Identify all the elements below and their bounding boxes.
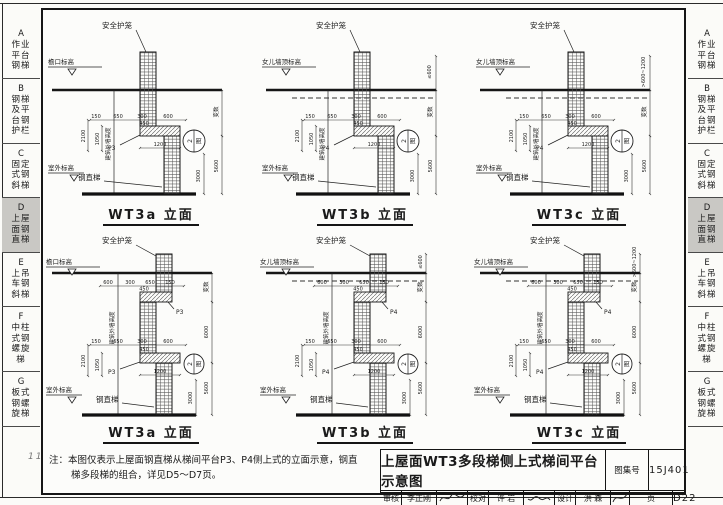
dim-label: 450 <box>353 287 363 293</box>
dim-label: 6000 <box>632 326 638 339</box>
dim-label: 450 <box>567 347 577 353</box>
sidebar-item[interactable]: F 中柱式钢螺旋梯 <box>2 307 40 372</box>
drawing-frame: 2 图 安全护笼 檐口标高 150 650 300 600 450 2100 1… <box>41 8 686 495</box>
sidebar-item-letter: E <box>688 258 723 269</box>
dim-label: 5600 <box>632 382 638 395</box>
dim-label: 1200 <box>368 369 381 375</box>
diagram-lines <box>262 30 436 194</box>
wall-height-label: 建筑外墙高度 <box>108 311 116 345</box>
dim-label: 300 <box>125 280 135 286</box>
roof-level-label: 檐口标高 <box>46 257 73 266</box>
level-marker <box>284 175 292 181</box>
roof-level-label: 女儿墙顶标高 <box>474 257 514 266</box>
review-label: 审核 <box>381 491 402 505</box>
safety-cage-label: 安全护笼 <box>530 20 560 30</box>
elevation-drawing: 2 图 安全护笼 女儿墙顶标高 >600~1200 600 300 650 15… <box>472 232 686 424</box>
dim-label: 150 <box>305 339 315 345</box>
level-marker <box>70 175 78 181</box>
dim-label: 5600 <box>204 382 210 395</box>
dim-label: 300 <box>351 114 361 120</box>
note: 注：本图仅表示上屋面钢直梯从梯间平台P3、P4侧上式的立面示意，钢直 梯多段梯的… <box>49 453 379 483</box>
sidebar-item-letter: C <box>2 149 40 160</box>
balloon-number: 2 <box>401 362 408 366</box>
safety-cage-label: 安全护笼 <box>530 235 560 245</box>
sidebar-item-letter: D <box>688 203 723 214</box>
ladder-lower-segment <box>592 136 608 194</box>
dim-label: 600 <box>377 114 387 120</box>
level-marker <box>498 175 506 181</box>
sidebar-item[interactable]: G 板式钢螺旋梯 <box>2 372 40 427</box>
dim-label: 2100 <box>295 130 301 143</box>
sidebar-item-letter: F <box>2 312 40 323</box>
rest-platform <box>568 126 608 136</box>
sidebar-item-label: 上屋面钢直梯 <box>11 214 31 246</box>
sidebar-left: A 作业平台钢梯 B 钢梯及平台钢护栏 C 固定式钢斜梯 D 上屋面钢直梯 E … <box>2 24 40 427</box>
review-name: 李正刚 <box>402 491 437 505</box>
atlas-page: { "page": { "corner_mark": "111" }, "sid… <box>0 0 723 502</box>
dim-label: 300 <box>339 280 349 286</box>
outdoor-level-label: 室外标高 <box>48 163 75 172</box>
sidebar-item[interactable]: F 中柱式钢螺旋梯 <box>688 307 723 372</box>
elevation-diagram: 2 图 安全护笼 女儿墙顶标高 >600~1200 600 300 650 15… <box>472 232 686 444</box>
dim-label: 450 <box>139 121 149 127</box>
sidebar-item[interactable]: E 上吊车钢斜梯 <box>2 253 40 308</box>
sidebar-item-label: 上屋面钢直梯 <box>697 214 717 246</box>
signature-stroke <box>612 491 628 505</box>
balloon-number: 2 <box>187 362 194 366</box>
balloon-page: 图 <box>624 138 631 144</box>
rest-platform <box>354 126 394 136</box>
dim-label: 150 <box>379 280 389 286</box>
sidebar-item[interactable]: E 上吊车钢斜梯 <box>688 253 723 308</box>
cell-wt3a-bottom: 2 图 安全护笼 檐口标高 600 300 650 150 450 P3 150… <box>44 232 258 450</box>
design-name: 洪 森 <box>576 491 611 505</box>
sidebar-item[interactable]: A 作业平台钢梯 <box>2 24 40 79</box>
sidebar-item-label: 板式钢螺旋梯 <box>11 388 31 420</box>
dim-label: 变数 <box>416 281 424 293</box>
ladder-lower-segment <box>164 136 180 194</box>
signature-stroke <box>526 491 552 505</box>
dim-label: 150 <box>91 339 101 345</box>
elevation-diagram: 2 图 安全护笼 女儿墙顶标高 ≤600 150 650 300 600 450… <box>258 14 472 226</box>
dim-label: 2100 <box>509 355 515 368</box>
steel-ladder-label: 钢直梯 <box>78 172 101 182</box>
elevation-diagram: 2 图 安全护笼 檐口标高 600 300 650 150 450 P3 150… <box>44 232 258 444</box>
sidebar-item-label: 上吊车钢斜梯 <box>11 269 31 301</box>
sidebar-item-letter: F <box>688 312 723 323</box>
dim-label: 600 <box>317 280 327 286</box>
dim-label: 150 <box>165 280 175 286</box>
dim-label: 600 <box>103 280 113 286</box>
dim-label: 1200 <box>582 142 595 148</box>
dim-label: 3000 <box>624 170 630 183</box>
dim-label: 600 <box>531 280 541 286</box>
outdoor-level-label: 室外标高 <box>46 385 73 394</box>
sidebar-item-letter: B <box>688 84 723 95</box>
diagram-title: WT3c 立面 <box>532 204 627 226</box>
sidebar-item-letter: C <box>688 149 723 160</box>
wall-height-label: 建筑外墙高度 <box>532 127 540 161</box>
elevation-diagram: 2 图 安全护笼 檐口标高 150 650 300 600 450 2100 1… <box>44 14 258 226</box>
dim-label: 150 <box>519 339 529 345</box>
sheet-title: 上屋面WT3多段梯侧上式梯间平台示意图 <box>381 450 606 490</box>
balloon-number: 2 <box>187 139 194 143</box>
balloon-page: 图 <box>410 138 417 144</box>
dim-label: 450 <box>139 347 149 353</box>
check-label: 校对 <box>468 491 489 505</box>
dim-label: 600 <box>591 114 601 120</box>
dim-label: 600 <box>377 339 387 345</box>
dim-label: 2100 <box>81 355 87 368</box>
balloon-page: 图 <box>196 361 203 367</box>
check-name: 许 岩 <box>489 491 524 505</box>
sidebar-item[interactable]: A 作业平台钢梯 <box>688 24 723 79</box>
dim-label: 650 <box>327 114 337 120</box>
sidebar-item[interactable]: B 钢梯及平台钢护栏 <box>688 79 723 144</box>
dim-label: 650 <box>573 280 583 286</box>
lower-platform <box>354 353 394 363</box>
dim-label: 5600 <box>428 160 434 173</box>
dim-label: 变数 <box>640 106 648 118</box>
elevation-drawing: 2 图 安全护笼 女儿墙顶标高 ≤600 600 300 650 150 450… <box>258 232 472 424</box>
dim-label: 1200 <box>154 369 167 375</box>
platform-label: P4 <box>604 309 612 316</box>
dim-label: 450 <box>567 121 577 127</box>
dim-label: 1050 <box>523 133 529 146</box>
dim-label: 5600 <box>642 160 648 173</box>
roof-level-label: 檐口标高 <box>48 57 75 66</box>
note-line1: 注：本图仅表示上屋面钢直梯从梯间平台P3、P4侧上式的立面示意，钢直 <box>49 453 379 468</box>
page-top-rule <box>0 3 723 4</box>
wall-height-label: 建筑外墙高度 <box>322 311 330 345</box>
sidebar-item[interactable]: C 固定式钢斜梯 <box>688 144 723 199</box>
diagram-title: WT3b 立面 <box>317 422 413 444</box>
dim-label: 5600 <box>418 382 424 395</box>
dim-label: 变数 <box>212 106 220 118</box>
diagram-title: WT3a 立面 <box>103 422 199 444</box>
steel-ladder-label: 钢直梯 <box>310 394 333 404</box>
cell-wt3c-bottom: 2 图 安全护笼 女儿墙顶标高 >600~1200 600 300 650 15… <box>472 232 686 450</box>
dim-label: 150 <box>305 114 315 120</box>
balloon-page: 图 <box>196 138 203 144</box>
safety-cage-label: 安全护笼 <box>316 20 346 30</box>
sidebar-item[interactable]: C 固定式钢斜梯 <box>2 144 40 199</box>
dim-label: 6000 <box>204 326 210 339</box>
lower-platform <box>140 353 180 363</box>
dim-label: 650 <box>145 280 155 286</box>
elevation-diagram: 2 图 安全护笼 女儿墙顶标高 >600~1200 150 650 300 60… <box>472 14 686 226</box>
dim-label: 450 <box>353 347 363 353</box>
dim-label: 450 <box>139 287 149 293</box>
design-label: 设计 <box>555 491 576 505</box>
diagram-lines <box>476 30 650 194</box>
level-marker <box>496 397 504 403</box>
lower-platform <box>568 353 608 363</box>
dim-label: 1200 <box>154 142 167 148</box>
sidebar-item-label: 上吊车钢斜梯 <box>697 269 717 301</box>
elevation-drawing: 2 图 安全护笼 檐口标高 150 650 300 600 450 2100 1… <box>44 14 258 206</box>
title-block-row2: 审核 李正刚 校对 许 岩 设计 洪 森 页 D22 <box>381 491 684 505</box>
platform-label: P3 <box>108 369 116 376</box>
dim-label: 1200 <box>582 369 595 375</box>
sidebar-item-label: 钢梯及平台钢护栏 <box>11 95 31 137</box>
sidebar-item-label: 钢梯及平台钢护栏 <box>697 95 717 137</box>
sidebar-item-letter: B <box>2 84 40 95</box>
diagram-title: WT3c 立面 <box>532 422 627 444</box>
dim-label: 2100 <box>81 130 87 143</box>
dim-label: 300 <box>565 114 575 120</box>
sidebar-item-letter: A <box>688 29 723 40</box>
wall-height-label: 建筑外墙高度 <box>318 127 326 161</box>
atlas-no-label: 图集号 <box>606 450 649 490</box>
dim-label: 300 <box>553 280 563 286</box>
dim-label: 300 <box>351 339 361 345</box>
sidebar-item[interactable]: D 上屋面钢直梯 <box>2 198 40 253</box>
design-signature <box>611 491 630 505</box>
dim-label: 300 <box>137 114 147 120</box>
note-label: 注： <box>49 455 68 466</box>
parapet-dim-label: ≤600 <box>418 255 424 269</box>
sidebar-item-letter: D <box>2 203 40 214</box>
sidebar-item-letter: E <box>2 258 40 269</box>
upper-platform <box>568 292 600 302</box>
balloon-number: 2 <box>401 139 408 143</box>
sidebar-item-label: 中柱式钢螺旋梯 <box>697 323 717 365</box>
page-no-value: D22 <box>673 491 696 505</box>
elevation-drawing: 2 图 安全护笼 女儿墙顶标高 >600~1200 150 650 300 60… <box>472 14 686 206</box>
dim-label: 3000 <box>402 392 408 405</box>
parapet-dim-label: >600~1200 <box>632 247 638 278</box>
wall-height-label: 建筑外墙高度 <box>104 127 112 161</box>
cell-wt3b-bottom: 2 图 安全护笼 女儿墙顶标高 ≤600 600 300 650 150 450… <box>258 232 472 450</box>
sidebar-item-label: 中柱式钢螺旋梯 <box>11 323 31 365</box>
title-block-row1: 上屋面WT3多段梯侧上式梯间平台示意图 图集号 15J401 <box>381 450 684 491</box>
balloon-number: 2 <box>615 139 622 143</box>
sidebar-item-label: 作业平台钢梯 <box>697 40 717 72</box>
dim-label: 3000 <box>410 170 416 183</box>
steel-ladder-label: 钢直梯 <box>292 172 315 182</box>
sidebar-item-letter: A <box>2 29 40 40</box>
diagram-title: WT3b 立面 <box>317 204 413 226</box>
outdoor-level-label: 室外标高 <box>260 385 287 394</box>
upper-platform <box>354 292 386 302</box>
dim-label: 6000 <box>418 326 424 339</box>
outdoor-level-label: 室外标高 <box>476 163 503 172</box>
wall-height-label: 建筑外墙高度 <box>536 311 544 345</box>
balloon-number: 2 <box>615 362 622 366</box>
platform-label: P4 <box>536 369 544 376</box>
safety-cage-label: 安全护笼 <box>316 235 346 245</box>
review-signature <box>437 491 468 505</box>
dim-label: 650 <box>113 114 123 120</box>
sidebar-item[interactable]: B 钢梯及平台钢护栏 <box>2 79 40 144</box>
balloon-page: 图 <box>410 361 417 367</box>
rest-platform <box>140 126 180 136</box>
dim-label: 变数 <box>426 106 434 118</box>
steel-ladder-label: 钢直梯 <box>96 394 119 404</box>
elevation-diagram: 2 图 安全护笼 女儿墙顶标高 ≤600 600 300 650 150 450… <box>258 232 472 444</box>
steel-ladder-label: 钢直梯 <box>524 394 547 404</box>
note-line2: 梯多段梯的组合，详见D5～D7页。 <box>49 468 379 483</box>
cell-wt3b-top: 2 图 安全护笼 女儿墙顶标高 ≤600 150 650 300 600 450… <box>258 14 472 232</box>
ladder-mid-segment <box>568 302 584 353</box>
parapet-dim-label: >600~1200 <box>641 57 647 88</box>
ladder-lower-segment <box>378 136 394 194</box>
title-block: 上屋面WT3多段梯侧上式梯间平台示意图 图集号 15J401 审核 李正刚 校对… <box>380 449 685 493</box>
ladder-mid-segment <box>140 302 156 353</box>
dim-label: 1050 <box>523 359 529 372</box>
dim-label: 450 <box>353 121 363 127</box>
sidebar-right: A 作业平台钢梯 B 钢梯及平台钢护栏 C 固定式钢斜梯 D 上屋面钢直梯 E … <box>688 24 723 427</box>
level-marker <box>282 69 290 75</box>
dim-label: 1200 <box>368 142 381 148</box>
elevation-drawing: 2 图 安全护笼 檐口标高 600 300 650 150 450 P3 150… <box>44 232 258 424</box>
sidebar-item-letter: G <box>688 377 723 388</box>
sidebar-item[interactable]: D 上屋面钢直梯 <box>688 198 723 253</box>
dim-label: 600 <box>591 339 601 345</box>
dim-label: 150 <box>519 114 529 120</box>
elevation-drawing: 2 图 安全护笼 女儿墙顶标高 ≤600 150 650 300 600 450… <box>258 14 472 206</box>
sidebar-item[interactable]: G 板式钢螺旋梯 <box>688 372 723 427</box>
dim-label: 450 <box>567 287 577 293</box>
safety-cage-label: 安全护笼 <box>102 20 132 30</box>
balloon-page: 图 <box>624 361 631 367</box>
dim-label: 变数 <box>630 281 638 293</box>
check-signature <box>524 491 555 505</box>
dim-label: 1050 <box>309 359 315 372</box>
dim-label: 650 <box>541 114 551 120</box>
parapet-dim-label: ≤600 <box>427 65 433 79</box>
dim-label: 300 <box>565 339 575 345</box>
dim-label: 150 <box>91 114 101 120</box>
dim-label: 3000 <box>616 392 622 405</box>
dim-label: 3000 <box>196 170 202 183</box>
diagram-title: WT3a 立面 <box>103 204 199 226</box>
dim-label: 3000 <box>188 392 194 405</box>
page-no-label: 页 <box>630 491 673 505</box>
dim-label: 1050 <box>95 133 101 146</box>
atlas-no-value: 15J401 <box>649 450 690 490</box>
dim-label: 600 <box>163 114 173 120</box>
dim-label: 650 <box>359 280 369 286</box>
dim-label: 变数 <box>202 281 210 293</box>
sidebar-item-letter: G <box>2 377 40 388</box>
outdoor-level-label: 室外标高 <box>474 385 501 394</box>
cell-wt3a-top: 2 图 安全护笼 檐口标高 150 650 300 600 450 2100 1… <box>44 14 258 232</box>
sidebar-item-label: 板式钢螺旋梯 <box>697 388 717 420</box>
dim-label: 2100 <box>509 130 515 143</box>
dim-label: 1050 <box>309 133 315 146</box>
outdoor-level-label: 室外标高 <box>262 163 289 172</box>
sidebar-item-label: 固定式钢斜梯 <box>697 160 717 192</box>
signature-stroke <box>438 491 466 505</box>
sidebar-item-label: 固定式钢斜梯 <box>11 160 31 192</box>
sidebar-item-label: 作业平台钢梯 <box>11 40 31 72</box>
upper-platform <box>140 292 172 302</box>
safety-cage-label: 安全护笼 <box>102 235 132 245</box>
dim-label: 1050 <box>95 359 101 372</box>
dim-label: 150 <box>593 280 603 286</box>
platform-label: P4 <box>390 309 398 316</box>
dim-label: 5600 <box>214 160 220 173</box>
platform-label: P4 <box>322 369 330 376</box>
level-marker <box>68 69 76 75</box>
dim-label: 300 <box>137 339 147 345</box>
steel-ladder-label: 钢直梯 <box>506 172 529 182</box>
cell-wt3c-top: 2 图 安全护笼 女儿墙顶标高 >600~1200 150 650 300 60… <box>472 14 686 232</box>
dim-label: 2100 <box>295 355 301 368</box>
platform-label: P3 <box>176 309 184 316</box>
level-marker <box>282 397 290 403</box>
level-marker <box>68 397 76 403</box>
level-marker <box>496 69 504 75</box>
roof-level-label: 女儿墙顶标高 <box>262 57 302 66</box>
ladder-mid-segment <box>354 302 370 353</box>
diagram-lines <box>48 30 222 194</box>
roof-level-label: 女儿墙顶标高 <box>260 257 300 266</box>
roof-level-label: 女儿墙顶标高 <box>476 57 516 66</box>
dim-label: 600 <box>163 339 173 345</box>
